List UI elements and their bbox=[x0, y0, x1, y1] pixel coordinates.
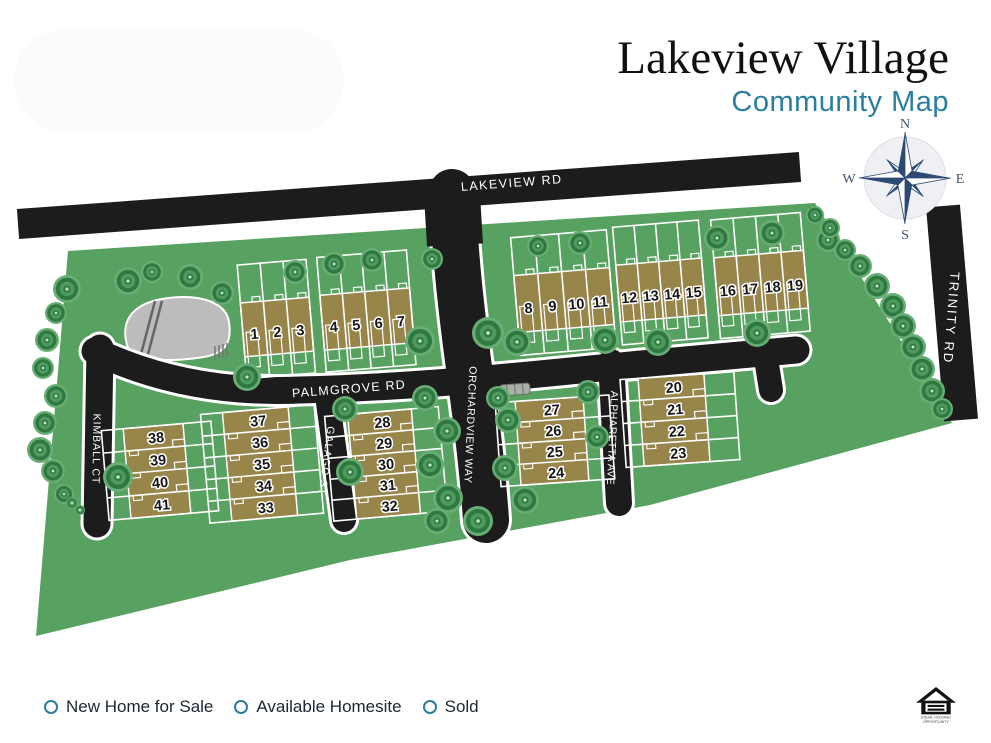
compass-letter: W bbox=[842, 172, 856, 187]
lot-number: 7 bbox=[396, 314, 405, 331]
lot-number: 1 bbox=[250, 327, 259, 344]
tree-icon bbox=[44, 384, 68, 408]
tree-icon bbox=[495, 407, 521, 433]
tree-icon bbox=[32, 357, 54, 379]
map-legend: New Home for Sale Available Homesite Sol… bbox=[44, 697, 479, 717]
tree-icon bbox=[433, 417, 461, 445]
compass-letter: S bbox=[901, 228, 909, 243]
compass-letter: E bbox=[956, 172, 965, 187]
compass-letter: N bbox=[900, 117, 910, 132]
tree-icon bbox=[53, 275, 81, 303]
tree-icon bbox=[412, 385, 438, 411]
tree-icon bbox=[35, 328, 59, 352]
tree-icon bbox=[75, 505, 85, 515]
tree-icon bbox=[27, 437, 53, 463]
tree-icon bbox=[806, 206, 824, 224]
site-map: LAKEVIEW RD PALMGROVE RD ORCHARDVIEW WAY… bbox=[0, 0, 991, 743]
tree-icon bbox=[141, 261, 163, 283]
tree-icon bbox=[848, 254, 872, 278]
lot-number: 41 bbox=[153, 497, 170, 514]
legend-item-sold: Sold bbox=[423, 697, 479, 717]
lot-number: 12 bbox=[621, 290, 638, 307]
legend-item-new-home: New Home for Sale bbox=[44, 697, 213, 717]
pond bbox=[125, 297, 229, 360]
tree-icon bbox=[486, 386, 510, 410]
lot-number: 27 bbox=[543, 402, 560, 419]
lot-number: 11 bbox=[592, 294, 609, 311]
lot-number: 22 bbox=[668, 424, 685, 441]
equal-housing-logo: EQUAL HOUSING OPPORTUNITY bbox=[915, 684, 957, 730]
tree-icon bbox=[492, 455, 518, 481]
tree-icon bbox=[644, 328, 672, 356]
tree-icon bbox=[820, 218, 840, 238]
lot-number: 40 bbox=[151, 475, 168, 492]
community-map-page: Lakeview Village Community Map bbox=[0, 0, 991, 743]
lot-number: 6 bbox=[374, 316, 383, 333]
lot-number: 32 bbox=[381, 498, 398, 515]
tree-icon bbox=[576, 380, 600, 404]
tree-icon bbox=[322, 252, 346, 276]
tree-icon bbox=[233, 363, 261, 391]
legend-item-available: Available Homesite bbox=[234, 697, 401, 717]
lot-number: 20 bbox=[665, 380, 682, 397]
lot-number: 17 bbox=[742, 281, 759, 298]
tree-icon bbox=[45, 302, 67, 324]
lot-number: 19 bbox=[786, 278, 803, 295]
tree-icon bbox=[759, 220, 785, 246]
legend-circle-icon bbox=[423, 700, 437, 714]
tree-icon bbox=[360, 248, 384, 272]
lot-number: 37 bbox=[250, 413, 267, 430]
lot-number: 5 bbox=[352, 318, 361, 335]
tree-icon bbox=[421, 248, 443, 270]
lot-number: 30 bbox=[377, 457, 394, 474]
tree-icon bbox=[283, 260, 307, 284]
lot-number: 35 bbox=[253, 457, 270, 474]
lot-number: 21 bbox=[667, 402, 684, 419]
tree-icon bbox=[114, 267, 142, 295]
tree-icon bbox=[103, 462, 133, 492]
lot-number: 10 bbox=[568, 296, 585, 313]
lot-number: 15 bbox=[685, 285, 702, 302]
legend-circle-icon bbox=[234, 700, 248, 714]
tree-icon bbox=[463, 506, 493, 536]
tree-icon bbox=[332, 396, 358, 422]
tree-icon bbox=[424, 508, 450, 534]
road-label-kimball: KIMBALL CT bbox=[89, 413, 102, 484]
tree-icon bbox=[585, 425, 609, 449]
tree-icon bbox=[416, 451, 444, 479]
tree-icon bbox=[41, 459, 65, 483]
lot-number: 13 bbox=[642, 288, 659, 305]
lot-number: 26 bbox=[545, 423, 562, 440]
lot-number: 29 bbox=[376, 436, 393, 453]
legend-label: Available Homesite bbox=[256, 697, 401, 717]
lot-number: 24 bbox=[548, 465, 565, 482]
tree-icon bbox=[511, 486, 539, 514]
legend-label: Sold bbox=[445, 697, 479, 717]
lot-number: 9 bbox=[548, 299, 557, 316]
road-driveway-stub bbox=[765, 352, 771, 390]
tree-icon bbox=[527, 235, 549, 257]
lot-number: 33 bbox=[257, 500, 274, 517]
tree-icon bbox=[472, 317, 504, 349]
lot-number: 28 bbox=[374, 415, 391, 432]
legend-circle-icon bbox=[44, 700, 58, 714]
lot-number: 18 bbox=[764, 279, 781, 296]
lot-number: 8 bbox=[524, 301, 533, 318]
tree-icon bbox=[591, 326, 619, 354]
lot-number: 39 bbox=[149, 452, 166, 469]
lot-number: 4 bbox=[329, 319, 338, 336]
lot-number: 2 bbox=[273, 325, 282, 342]
legend-label: New Home for Sale bbox=[66, 697, 213, 717]
tree-icon bbox=[405, 326, 435, 356]
tree-icon bbox=[177, 264, 203, 290]
equal-housing-text: OPPORTUNITY bbox=[923, 720, 949, 724]
lot-number: 3 bbox=[296, 323, 305, 340]
tree-icon bbox=[336, 458, 364, 486]
lot-number: 16 bbox=[719, 283, 736, 300]
lot-number: 38 bbox=[147, 430, 164, 447]
tree-icon bbox=[33, 411, 57, 435]
tree-icon bbox=[568, 231, 592, 255]
lot-number: 36 bbox=[251, 435, 268, 452]
tree-icon bbox=[931, 398, 953, 420]
lot-number: 14 bbox=[664, 286, 681, 303]
lot-number: 23 bbox=[670, 446, 687, 463]
lot-number: 25 bbox=[546, 444, 563, 461]
tree-icon bbox=[743, 319, 771, 347]
house-roof-icon bbox=[916, 687, 956, 703]
lot-number: 34 bbox=[255, 478, 272, 495]
tree-icon bbox=[210, 281, 234, 305]
tree-icon bbox=[704, 225, 730, 251]
lot-number: 31 bbox=[379, 478, 396, 495]
tree-icon bbox=[503, 328, 531, 356]
